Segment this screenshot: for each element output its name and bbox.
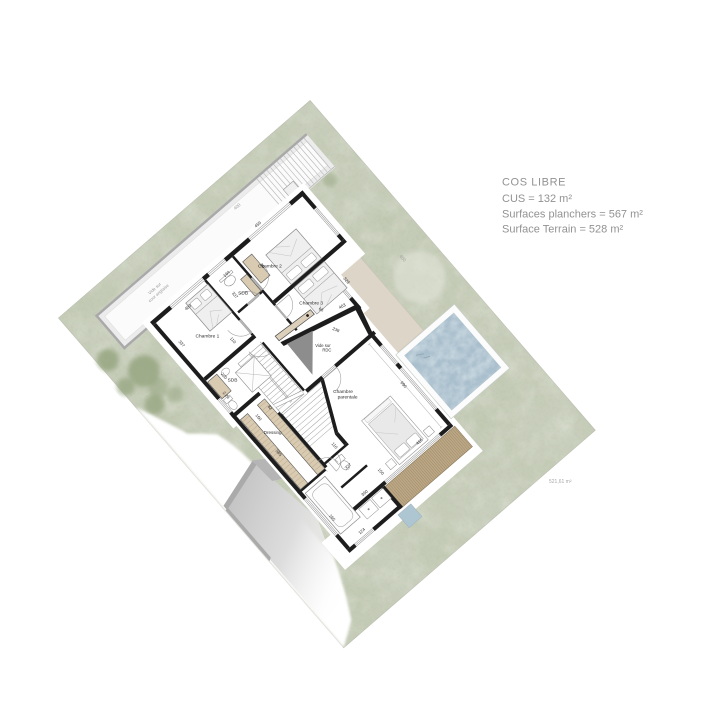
svg-text:RDC: RDC — [322, 348, 331, 353]
svg-text:521,61 m²: 521,61 m² — [549, 479, 572, 485]
svg-text:Surface Terrain = 528 m²: Surface Terrain = 528 m² — [502, 224, 623, 236]
svg-text:Chambre: Chambre — [333, 389, 353, 395]
svg-text:SDB: SDB — [228, 378, 238, 384]
svg-text:CUS = 132 m²: CUS = 132 m² — [502, 193, 572, 205]
svg-text:Surfaces planchers = 567 m²: Surfaces planchers = 567 m² — [502, 209, 643, 221]
svg-text:parentale: parentale — [338, 395, 358, 401]
svg-text:Chambre 1: Chambre 1 — [196, 333, 220, 339]
svg-text:COS LIBRE: COS LIBRE — [502, 177, 566, 189]
svg-text:Dressing: Dressing — [264, 430, 282, 435]
